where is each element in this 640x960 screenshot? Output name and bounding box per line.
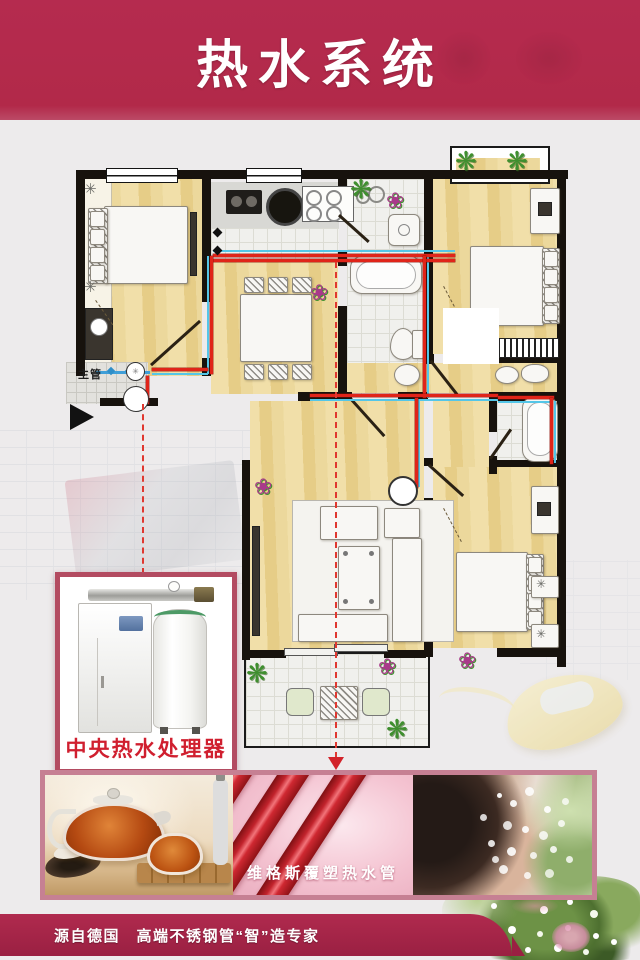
white-patch (443, 308, 499, 364)
wall (242, 460, 250, 660)
connector-arrow-icon (328, 757, 344, 770)
pipes-caption: 维格斯覆塑热水管 (233, 862, 413, 883)
table-dot (343, 599, 348, 604)
chair (268, 277, 288, 293)
patio-chair (286, 688, 314, 716)
fan-icon: ✳ (536, 578, 546, 590)
pillow (544, 287, 558, 303)
chair (244, 277, 264, 293)
chair (268, 364, 288, 380)
water-splash (497, 793, 502, 798)
wall (497, 648, 566, 657)
wall (242, 650, 286, 658)
pillow (544, 269, 558, 285)
patio-chair (362, 688, 390, 716)
entry-arrow-icon (70, 404, 94, 430)
sliding-door (334, 644, 388, 652)
background-bottle (213, 779, 228, 865)
window (106, 168, 178, 183)
burner (246, 196, 257, 207)
inset-pipe (88, 589, 196, 601)
connector-dashed-line (335, 262, 337, 758)
plant-icon: ❋ (350, 176, 372, 202)
hob-burner (306, 206, 322, 222)
hot-water-pipe (210, 256, 213, 374)
vanity-sink (90, 318, 108, 336)
cabinet-handle (101, 676, 104, 688)
burner (231, 196, 242, 207)
toilet (521, 364, 549, 383)
footer-slogan: 源自德国 高端不锈钢管“智”造专家 (0, 925, 320, 946)
plant-icon: ❋ (246, 660, 268, 686)
shower-drain (398, 224, 410, 236)
fan-icon: ✳ (84, 182, 97, 197)
washbasin (394, 364, 420, 386)
water-meter: ✳ (126, 362, 145, 381)
header-banner: 热水系统 (0, 0, 640, 120)
chair (244, 364, 264, 380)
pillow (528, 557, 542, 573)
hot-water-pipe (152, 368, 208, 371)
pipe-fitting-icon (194, 587, 214, 602)
sofa (392, 538, 422, 642)
pillow (90, 247, 105, 263)
monitor (537, 502, 551, 516)
water-heater-unit (388, 476, 418, 506)
inset-caption: 中央热水处理器 (60, 733, 232, 763)
closet (497, 338, 559, 358)
hallway-floor (433, 401, 489, 467)
cabinet-door-seam (97, 638, 98, 726)
washbasin (495, 366, 519, 384)
poster-page: 热水系统 主管 ✳✳❋❋❋❀❀❀❋❀❋❀✳✳✳ 中央热水处理器 (0, 0, 640, 960)
hot-water-pipe (310, 394, 498, 397)
cold-water-pipe (310, 399, 498, 401)
sink-round (266, 188, 304, 226)
monitor (538, 202, 552, 216)
connector-dashed-line (142, 404, 144, 574)
photo-strip: 维格斯覆塑热水管 (40, 770, 597, 900)
water-processor-inset: 中央热水处理器 (55, 572, 237, 774)
hot-water-pipe (423, 256, 426, 398)
cold-water-pipe (418, 399, 420, 487)
pillow (544, 251, 558, 267)
pillow (90, 229, 105, 245)
table-dot (369, 599, 374, 604)
header-watermark (430, 18, 600, 98)
chair (292, 277, 312, 293)
cold-water-pipe (152, 373, 208, 375)
page-title: 热水系统 (196, 23, 444, 98)
plant-icon: ❀ (310, 282, 328, 304)
boiler-cabinet (78, 603, 152, 733)
pink-flower (552, 922, 590, 952)
table-dot (369, 551, 374, 556)
fan-icon: ✳ (84, 280, 97, 295)
bed (456, 552, 528, 632)
cold-water-pipe (554, 401, 556, 463)
tv-panel (190, 212, 197, 276)
brand-badge (119, 616, 143, 631)
water-meter (123, 386, 149, 412)
coated-pipes-photo: 维格斯覆塑热水管 (233, 775, 413, 895)
footer-banner: 源自德国 高端不锈钢管“智”造专家 (0, 914, 512, 956)
sliding-door (284, 648, 338, 656)
wall (489, 392, 497, 432)
sofa (298, 614, 388, 642)
bed (104, 206, 188, 284)
hot-water-pipe (498, 396, 554, 399)
wall (76, 170, 85, 376)
armchair (320, 506, 378, 540)
main-pipe-label: 主管 (78, 366, 102, 382)
patio-table (320, 686, 358, 720)
plant-icon: ❋ (506, 148, 528, 174)
cold-water-pipe (207, 256, 209, 374)
pillow (544, 305, 558, 321)
hob-burner (306, 190, 322, 206)
teapot-knob (107, 788, 120, 799)
armchair (384, 508, 420, 538)
plant-icon: ❀ (254, 476, 272, 498)
teapot-spout (153, 809, 172, 826)
tub-inner (356, 261, 416, 289)
plant-icon: ❀ (386, 190, 404, 212)
valve-knob-icon (168, 581, 180, 592)
fan-icon: ✳ (536, 628, 546, 640)
tv-panel (252, 526, 260, 636)
tea-cup (147, 833, 203, 875)
pillow (90, 211, 105, 227)
chair (292, 364, 312, 380)
cold-water-pipe (213, 250, 455, 252)
pink-mist (512, 898, 558, 914)
cold-water-pipe (498, 401, 552, 403)
cold-water-pipe (427, 256, 429, 398)
window (246, 168, 302, 183)
hot-water-pipe (213, 259, 455, 262)
plant-icon: ❋ (455, 148, 477, 174)
hot-water-pipe (415, 398, 418, 488)
tea-set-photo (45, 775, 233, 895)
hot-water-pipe (550, 398, 553, 464)
plant-icon: ❀ (378, 656, 396, 678)
wall (338, 306, 347, 398)
storage-tank (153, 609, 207, 729)
dining-table (240, 294, 312, 362)
plant-icon: ❀ (458, 650, 476, 672)
hob-burner (326, 190, 342, 206)
table-dot (343, 551, 348, 556)
hot-water-pipe (213, 254, 455, 257)
face-washing-photo (413, 775, 592, 895)
plant-icon: ❋ (386, 716, 408, 742)
